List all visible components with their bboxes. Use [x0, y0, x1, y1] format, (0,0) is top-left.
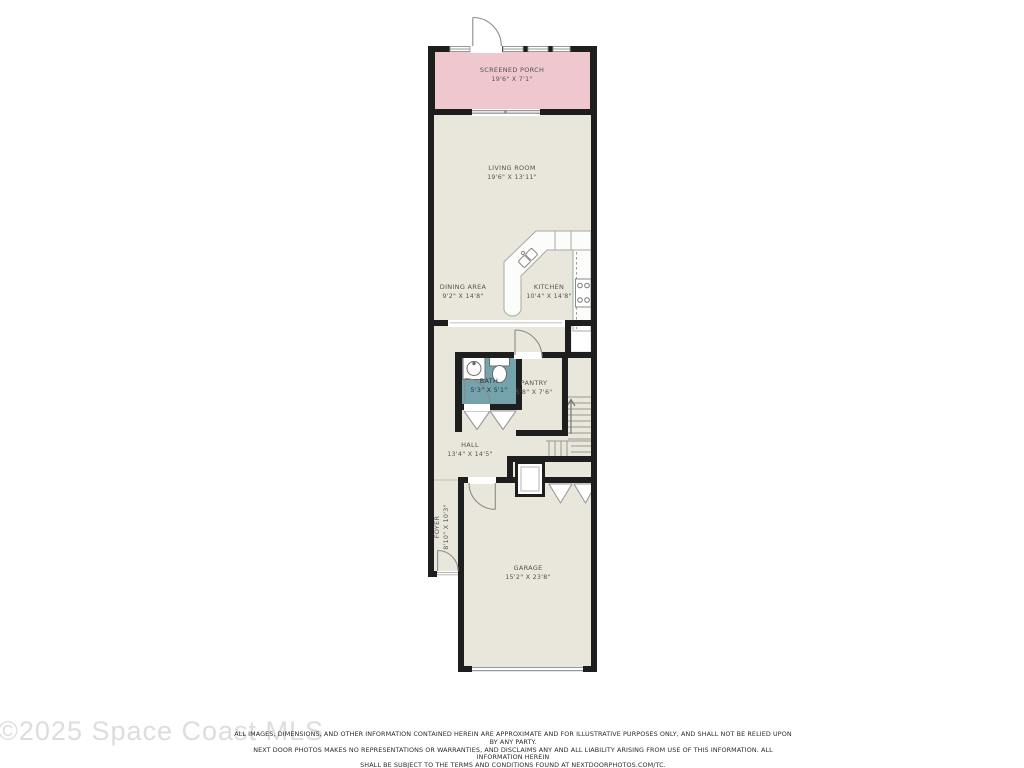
room-label-garage: GARAGE 15'2" X 23'8" [505, 564, 551, 582]
wall-exterior-right [591, 109, 597, 672]
opening-garage-door-interior [468, 477, 496, 484]
room-name: SCREENED PORCH [480, 66, 544, 75]
room-dims: 10'4" X 14'8" [526, 292, 572, 301]
opening-porch-door [470, 45, 502, 54]
toilet-tank [490, 358, 510, 367]
floorplan-drawing [0, 0, 1024, 768]
disclaimer-line: SHALL BE SUBJECT TO THE TERMS AND CONDIT… [233, 762, 793, 768]
room-dims: 15'2" X 23'8" [505, 573, 551, 582]
room-label-hall: HALL 13'4" X 14'5" [447, 441, 493, 459]
wall-pantry-bottom [516, 430, 568, 436]
room-dims: 19'6" X 13'11" [487, 173, 537, 182]
room-label-living-room: LIVING ROOM 19'6" X 13'11" [487, 164, 537, 182]
room-dims: 19'6" X 7'1" [480, 75, 544, 84]
room-label-screened-porch: SCREENED PORCH 19'6" X 7'1" [480, 66, 544, 84]
room-dims: 5'3" X 5'1" [471, 386, 508, 395]
room-dims: 8'10" X 10'3" [442, 504, 451, 550]
disclaimer-line: NEXT DOOR PHOTOS MAKES NO REPRESENTATION… [233, 747, 793, 763]
disclaimer-text: ALL IMAGES, DIMENSIONS, AND OTHER INFORM… [233, 731, 793, 768]
room-name: FOYER [433, 504, 442, 550]
room-dims: 9'2" X 14'8" [440, 292, 486, 301]
floorplan-page: SCREENED PORCH 19'6" X 7'1" LIVING ROOM … [0, 0, 1024, 768]
room-label-dining-area: DINING AREA 9'2" X 14'8" [440, 283, 486, 301]
room-dims: 5'8" X 7'6" [516, 388, 553, 397]
water-heater [517, 463, 544, 496]
room-name: GARAGE [505, 564, 551, 573]
wall-porch-right [590, 46, 597, 115]
wall-porch-left [428, 46, 435, 115]
room-name: KITCHEN [526, 283, 572, 292]
range [576, 279, 592, 307]
room-label-pantry: PANTRY 5'8" X 7'6" [516, 379, 553, 397]
room-label-kitchen: KITCHEN 10'4" X 14'8" [526, 283, 572, 301]
slider-handle [504, 110, 507, 114]
opening-dining-hall [448, 320, 565, 327]
opening-bath-door [464, 404, 490, 411]
wall-pantry-right [562, 352, 568, 436]
room-label-foyer: FOYER 8'10" X 10'3" [433, 504, 451, 550]
room-name: BATH [471, 377, 508, 386]
disclaimer-line: ALL IMAGES, DIMENSIONS, AND OTHER INFORM… [233, 731, 793, 747]
room-dims: 13'4" X 14'5" [447, 450, 493, 459]
room-name: PANTRY [516, 379, 553, 388]
porch-door-arc [473, 18, 502, 47]
room-label-bath: BATH 5'3" X 5'1" [471, 377, 508, 395]
faucet-icon [473, 362, 475, 364]
room-name: HALL [447, 441, 493, 450]
room-name: DINING AREA [440, 283, 486, 292]
opening-pantry-door [514, 352, 542, 359]
wall-bath-left [455, 352, 462, 432]
room-name: LIVING ROOM [487, 164, 537, 173]
